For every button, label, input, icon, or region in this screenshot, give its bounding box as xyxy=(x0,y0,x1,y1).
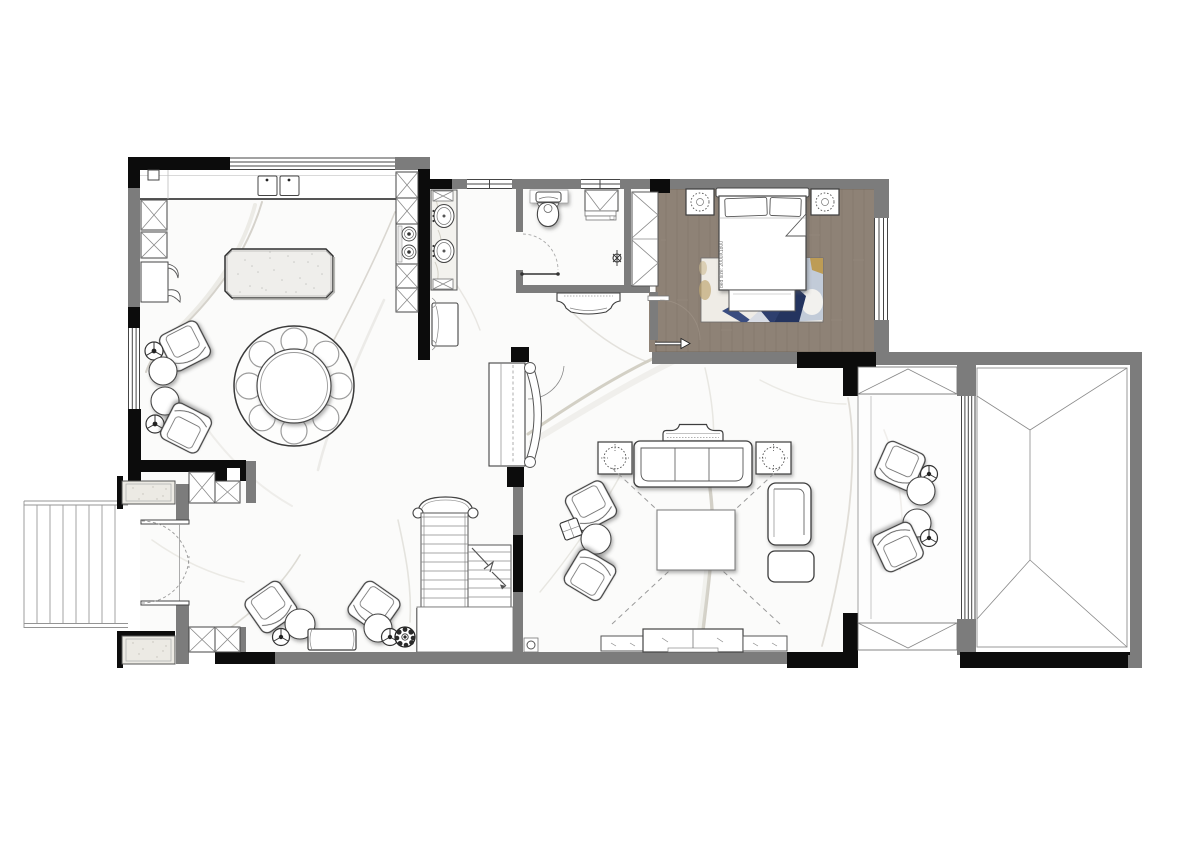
svg-text:bed size: 2000X1800: bed size: 2000X1800 xyxy=(719,241,725,288)
